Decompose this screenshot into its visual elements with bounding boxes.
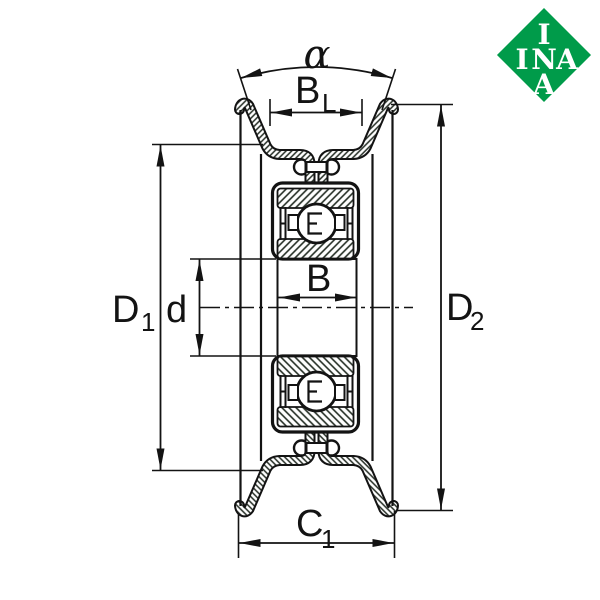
bl-sub-label: L xyxy=(322,88,336,118)
logo-letter-bottom: A xyxy=(532,68,556,101)
lower-half-section xyxy=(240,356,394,512)
crimp-slot xyxy=(307,162,327,172)
d1-sub-label: 1 xyxy=(141,307,155,337)
d-label: d xyxy=(166,289,187,331)
dim-groove-width-bl: B L xyxy=(270,70,362,126)
logo-letter-mid-a: A xyxy=(555,43,579,76)
d2-sub-label: 2 xyxy=(470,306,484,336)
dim-bearing-width-b: B xyxy=(278,258,357,302)
ina-logo: I I N A A xyxy=(497,8,591,102)
ball-bearing-section xyxy=(273,183,359,259)
c1-label: C xyxy=(296,503,323,545)
pulley-bearing-drawing: α B L B d D 1 xyxy=(0,0,600,600)
bl-label: B xyxy=(295,70,320,112)
dim-c1: C 1 xyxy=(239,503,395,558)
logo-letter-mid-i: I xyxy=(515,43,528,76)
b-label: B xyxy=(306,258,331,300)
upper-half-section xyxy=(240,103,394,259)
d1-label: D xyxy=(112,289,139,331)
technical-drawing-page: α B L B d D 1 xyxy=(0,0,600,600)
c1-sub-label: 1 xyxy=(321,524,335,554)
